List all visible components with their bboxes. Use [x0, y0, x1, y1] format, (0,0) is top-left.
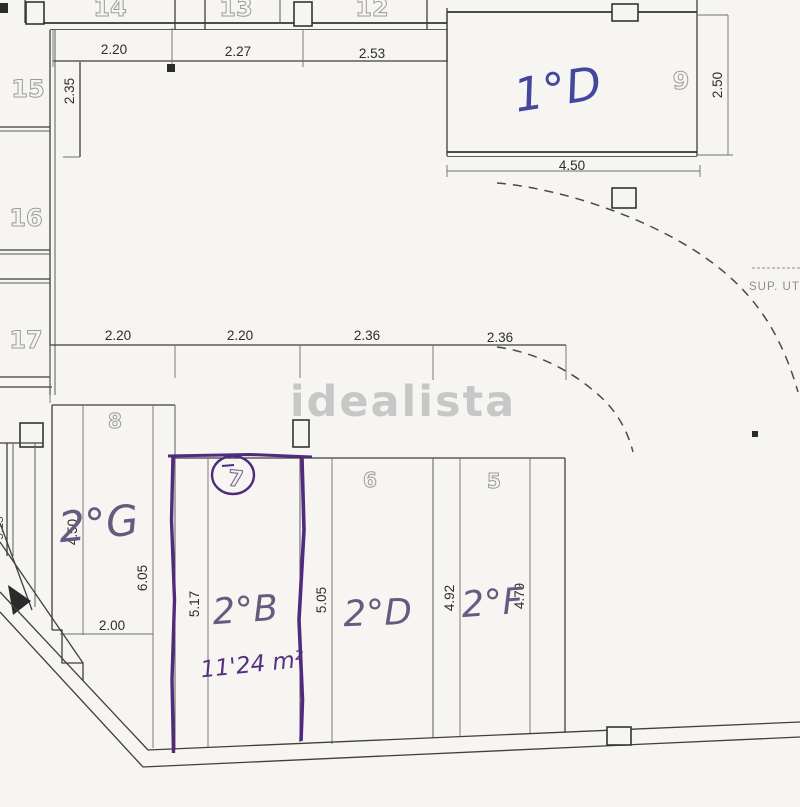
- unit-number-12: 12: [355, 0, 388, 22]
- boundary-line: [148, 722, 800, 750]
- unit-number-9: 9: [673, 67, 690, 95]
- dim-label: 4.50: [559, 158, 585, 173]
- dim-label: 2.35: [62, 78, 77, 104]
- survey-marker: [752, 431, 758, 437]
- unit-number-13: 13: [219, 0, 252, 22]
- unit-number-16: 16: [9, 204, 42, 232]
- column-below-unit9: [612, 188, 636, 208]
- unit-number-7: 7: [227, 466, 245, 492]
- dim-label: 5.05: [314, 587, 329, 613]
- boundary-line: [0, 592, 148, 750]
- dim-label: 2.50: [710, 72, 725, 98]
- handwritten-unit6-label: 2°D: [343, 592, 413, 635]
- highlight-line-left: [172, 455, 175, 753]
- dim-label: 2.53: [359, 46, 385, 61]
- column-top-left: [26, 2, 44, 24]
- unit-number-8: 8: [108, 409, 122, 433]
- dim-label: 5.17: [187, 591, 202, 617]
- ramp-arrowhead: [8, 585, 31, 615]
- wall-end-block: [0, 3, 8, 13]
- column-13-12: [294, 2, 312, 26]
- handwritten-unit5-label: 2°F: [460, 581, 526, 626]
- floorplan-svg: 14 13 12 15 16 17 2.20 2.27 2.53 2.35: [0, 0, 800, 807]
- handwritten-area-note: 11'24 m²: [199, 647, 305, 684]
- column-unit9-top: [612, 4, 638, 21]
- dim-label: 2.36: [354, 328, 380, 343]
- dim-label: 2.00: [99, 618, 125, 633]
- floorplan-scan: 14 13 12 15 16 17 2.20 2.27 2.53 2.35: [0, 0, 800, 807]
- dim-label: 6.05: [135, 565, 150, 591]
- unit8-walls: [52, 405, 175, 750]
- column-bottom-wall: [607, 727, 631, 745]
- survey-marker: [167, 64, 175, 72]
- handwritten-unit7-label: 2°B: [211, 588, 279, 633]
- idealista-watermark: idealista: [290, 377, 516, 427]
- dim-label: 2.36: [487, 330, 513, 345]
- dim-label: 5.15: [0, 516, 6, 540]
- dim-235: [63, 62, 80, 157]
- dim-label: 2.20: [105, 328, 131, 343]
- handwritten-unit9-label: 1°D: [510, 56, 605, 123]
- unit-number-17: 17: [9, 326, 42, 354]
- boundary-line: [143, 737, 800, 767]
- unit-number-15: 15: [11, 75, 44, 103]
- column-mid: [293, 420, 309, 447]
- dim-label: 2.20: [227, 328, 253, 343]
- dim-label: 2.20: [101, 42, 127, 57]
- sup-util-label: SUP. UTIL: [749, 281, 800, 293]
- dim-label: 2.27: [225, 44, 251, 59]
- boundary-line: [0, 612, 143, 767]
- unit-number-6: 6: [363, 468, 377, 492]
- handwritten-unit8-label: 2°G: [56, 495, 141, 552]
- unit-number-5: 5: [487, 469, 501, 493]
- dim-label: 4.92: [442, 585, 457, 611]
- door-swing-arc-small: [497, 347, 633, 452]
- unit-number-14: 14: [93, 0, 126, 22]
